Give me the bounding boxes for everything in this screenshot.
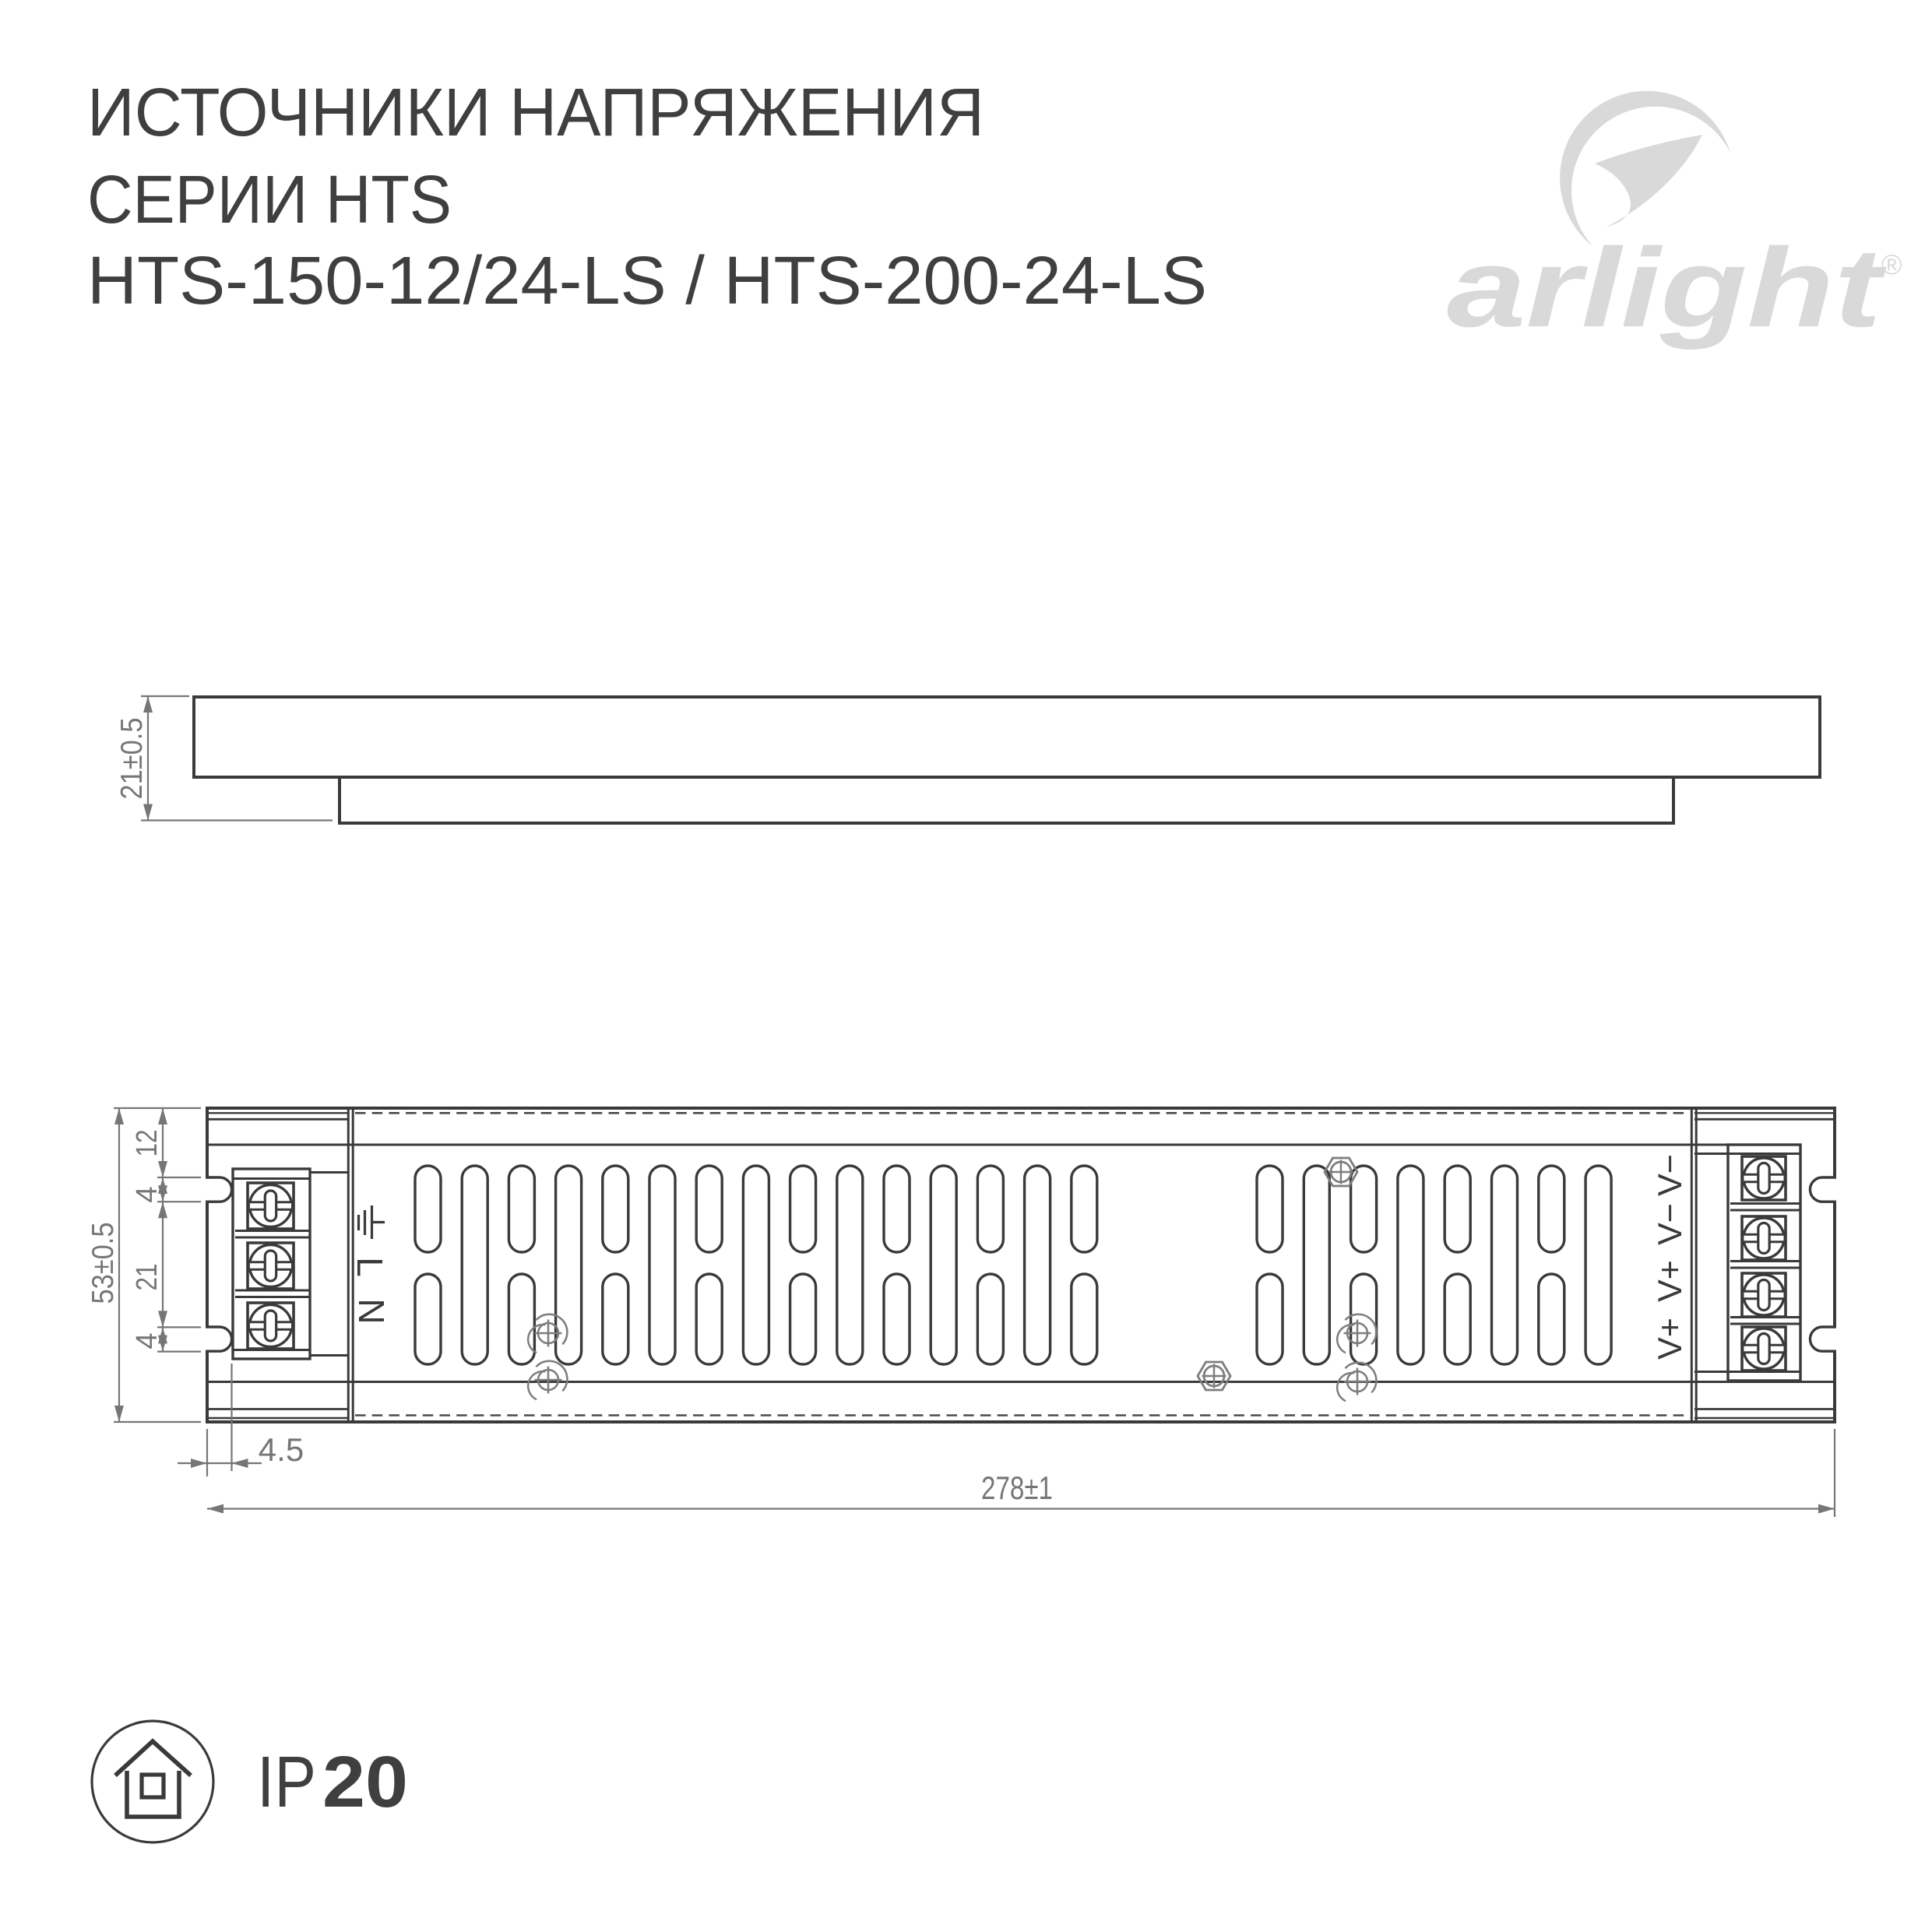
- svg-text:arlight: arlight: [1447, 225, 1886, 350]
- svg-text:21±0.5: 21±0.5: [115, 718, 149, 800]
- svg-text:HTS-150-12/24-LS / HTS-200-24-: HTS-150-12/24-LS / HTS-200-24-LS: [87, 243, 1207, 318]
- svg-text:4: 4: [131, 1332, 164, 1349]
- svg-text:ИСТОЧНИКИ НАПРЯЖЕНИЯ: ИСТОЧНИКИ НАПРЯЖЕНИЯ: [87, 75, 984, 150]
- svg-text:21: 21: [131, 1264, 164, 1291]
- svg-text:IP20: IP20: [257, 1741, 408, 1822]
- svg-text:N: N: [351, 1298, 392, 1324]
- svg-text:СЕРИИ HTS: СЕРИИ HTS: [87, 162, 452, 238]
- svg-text:12: 12: [131, 1130, 164, 1157]
- svg-text:V−: V−: [1652, 1203, 1689, 1245]
- svg-text:V−: V−: [1652, 1154, 1689, 1196]
- svg-text:278±1: 278±1: [981, 1469, 1053, 1506]
- svg-text:L: L: [350, 1257, 390, 1277]
- svg-text:V+: V+: [1652, 1318, 1689, 1360]
- svg-text:®: ®: [1881, 248, 1902, 280]
- svg-text:4.5: 4.5: [259, 1431, 304, 1468]
- svg-text:V+: V+: [1652, 1260, 1689, 1302]
- svg-text:53±0.5: 53±0.5: [86, 1223, 120, 1304]
- svg-text:4: 4: [131, 1186, 164, 1202]
